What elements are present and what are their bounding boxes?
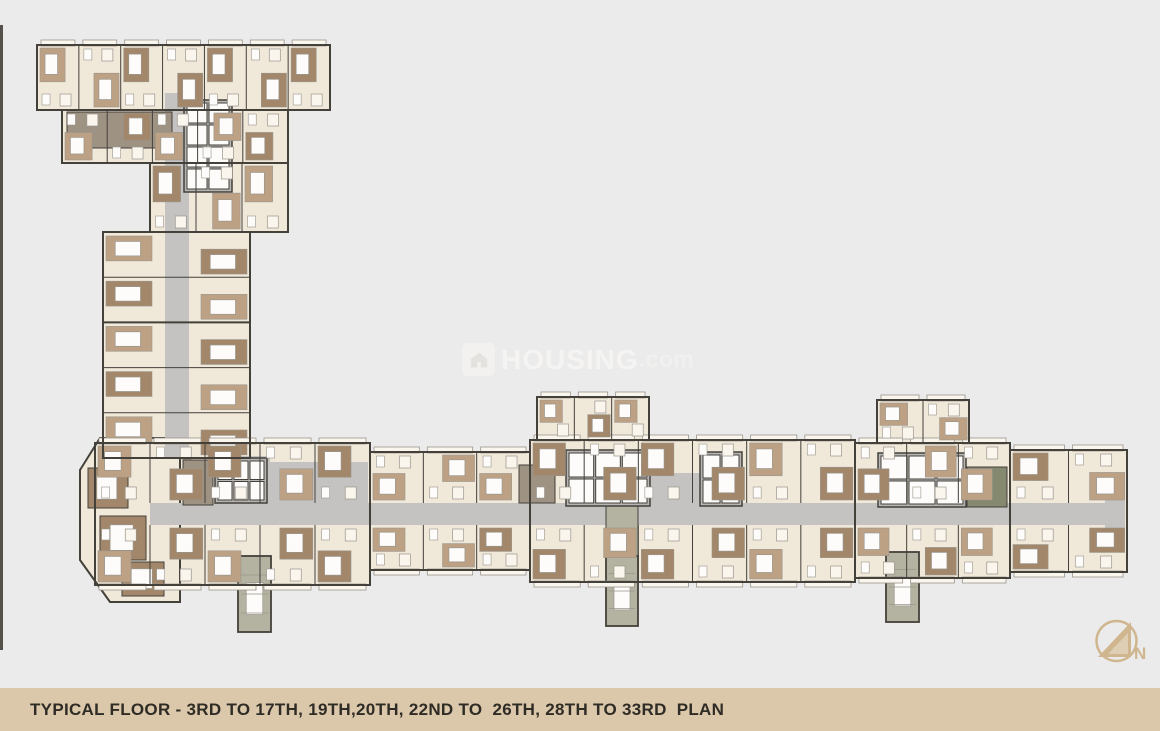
house-icon xyxy=(462,343,495,376)
floor-plan-page: HOUSING .com N TYPICAL FLOOR - 3RD TO 17… xyxy=(0,0,1160,731)
watermark: HOUSING .com xyxy=(462,343,694,376)
north-arrow-icon xyxy=(1088,612,1156,674)
watermark-brand: HOUSING xyxy=(501,344,639,376)
caption-bar: TYPICAL FLOOR - 3RD TO 17TH, 19TH,20TH, … xyxy=(0,688,1160,731)
caption-text: TYPICAL FLOOR - 3RD TO 17TH, 19TH,20TH, … xyxy=(30,700,724,720)
north-label: N xyxy=(1134,644,1146,664)
north-compass: N xyxy=(1088,612,1156,674)
watermark-tld: .com xyxy=(639,346,695,373)
left-edge-line xyxy=(0,25,3,650)
